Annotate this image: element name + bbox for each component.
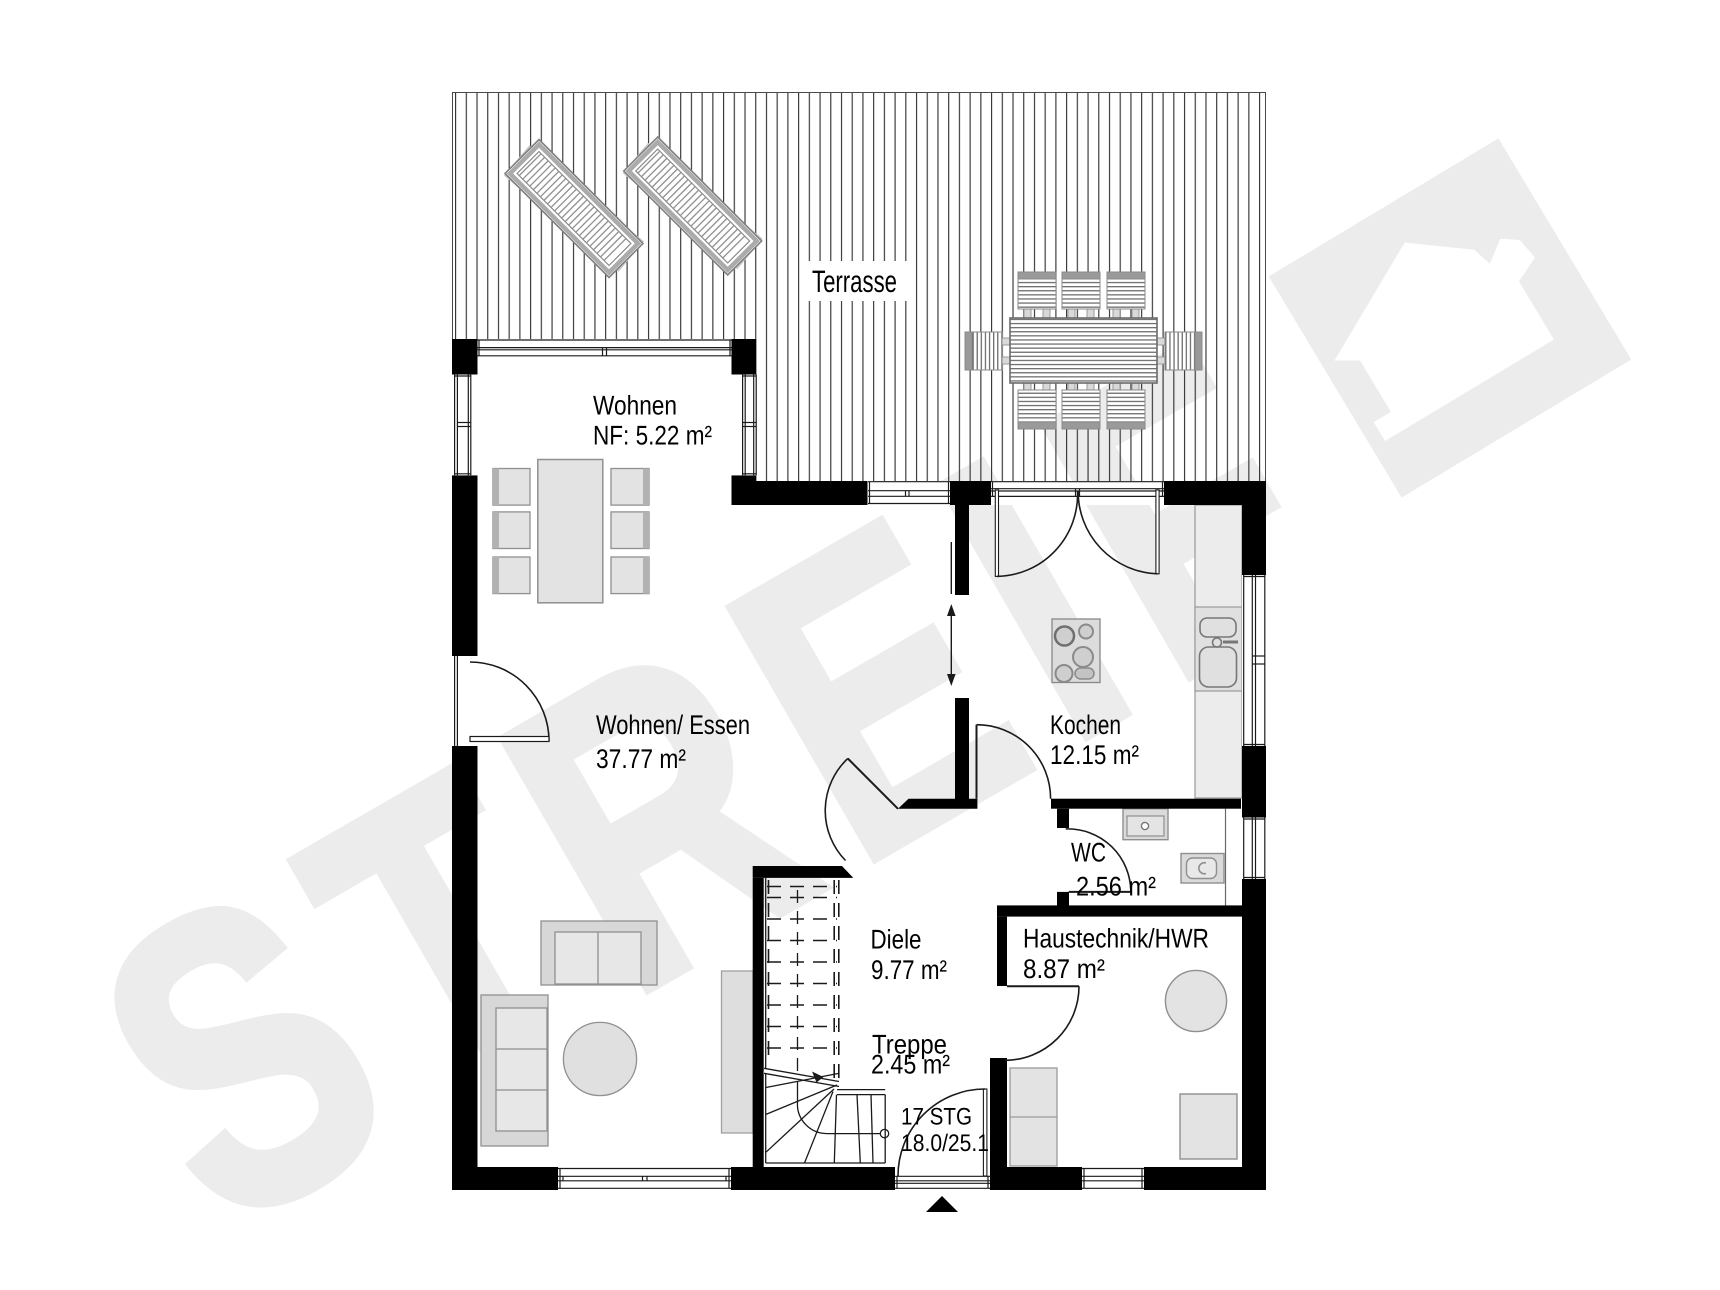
svg-text:NF: 5.22 m²: NF: 5.22 m² [593, 421, 712, 451]
svg-text:Diele: Diele [871, 925, 922, 955]
svg-text:Haustechnik/HWR: Haustechnik/HWR [1023, 924, 1209, 954]
svg-text:Wohnen/ Essen: Wohnen/ Essen [596, 710, 750, 740]
svg-text:2.45 m²: 2.45 m² [871, 1050, 950, 1080]
svg-text:WC: WC [1071, 838, 1106, 868]
svg-text:Kochen: Kochen [1050, 710, 1121, 740]
svg-text:2.56 m²: 2.56 m² [1076, 872, 1156, 902]
svg-text:12.15 m²: 12.15 m² [1050, 740, 1139, 770]
svg-text:Wohnen: Wohnen [593, 391, 677, 421]
svg-text:18.0/25.1: 18.0/25.1 [901, 1130, 989, 1157]
svg-text:37.77 m²: 37.77 m² [596, 744, 686, 774]
svg-text:8.87 m²: 8.87 m² [1023, 954, 1105, 984]
svg-text:9.77 m²: 9.77 m² [871, 955, 947, 985]
svg-text:Terrasse: Terrasse [812, 264, 897, 299]
svg-text:17 STG: 17 STG [901, 1104, 972, 1131]
